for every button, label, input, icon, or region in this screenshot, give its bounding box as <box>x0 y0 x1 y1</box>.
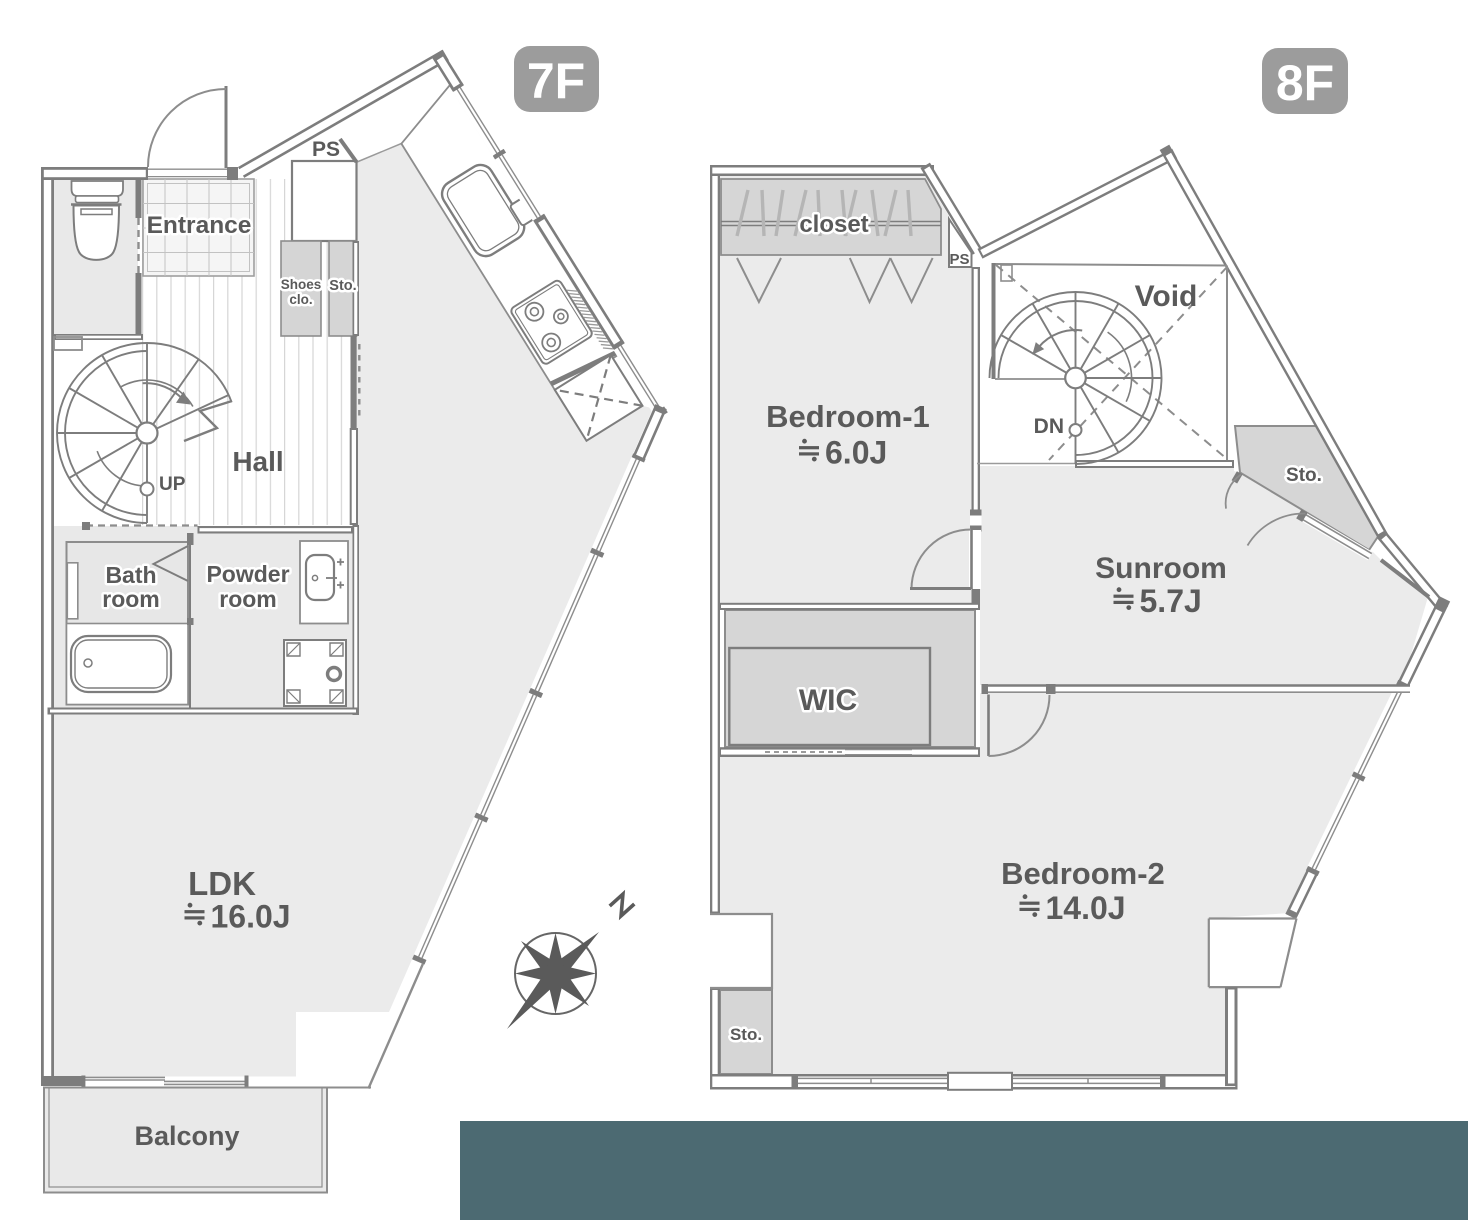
svg-text:WIC: WIC <box>799 684 857 717</box>
svg-text:Shoes: Shoes <box>281 277 322 292</box>
svg-text:Bedroom-2: Bedroom-2 <box>1001 856 1165 891</box>
svg-text:PS: PS <box>312 138 340 161</box>
svg-text:5.7J: 5.7J <box>1140 583 1202 619</box>
svg-text:Bedroom-1: Bedroom-1 <box>766 399 930 434</box>
svg-text:Sto.: Sto. <box>329 278 356 294</box>
svg-text:Void: Void <box>1135 280 1198 313</box>
svg-text:Powder: Powder <box>206 561 289 587</box>
svg-text:Sto.: Sto. <box>1286 465 1322 486</box>
svg-text:UP: UP <box>159 474 186 495</box>
svg-text:room: room <box>102 586 160 612</box>
svg-text:14.0J: 14.0J <box>1046 890 1126 926</box>
svg-text:Hall: Hall <box>232 446 283 477</box>
svg-text:PS: PS <box>949 251 969 268</box>
svg-text:Sunroom: Sunroom <box>1095 552 1227 585</box>
svg-text:Sto.: Sto. <box>730 1025 762 1044</box>
svg-text:7F: 7F <box>527 53 585 109</box>
svg-text:Balcony: Balcony <box>134 1121 239 1151</box>
svg-text:room: room <box>219 586 277 612</box>
svg-text:6.0J: 6.0J <box>825 435 887 471</box>
svg-text:DN: DN <box>1034 415 1064 438</box>
svg-text:8F: 8F <box>1276 55 1334 111</box>
svg-text:16.0J: 16.0J <box>211 899 291 935</box>
svg-text:LDK: LDK <box>188 865 256 902</box>
svg-text:Bath: Bath <box>105 562 156 588</box>
svg-text:Entrance: Entrance <box>147 212 252 239</box>
svg-text:closet: closet <box>799 211 868 238</box>
svg-text:clo.: clo. <box>289 292 312 307</box>
